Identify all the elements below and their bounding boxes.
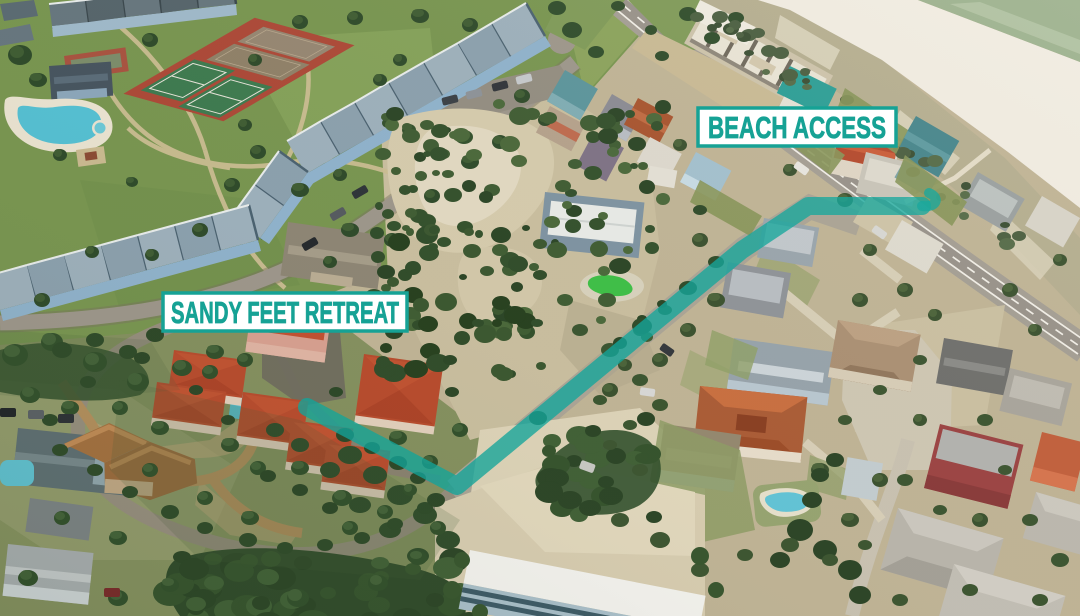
svg-text:BEACH ACCESS: BEACH ACCESS <box>708 110 886 145</box>
svg-text:SANDY FEET RETREAT: SANDY FEET RETREAT <box>171 295 399 330</box>
